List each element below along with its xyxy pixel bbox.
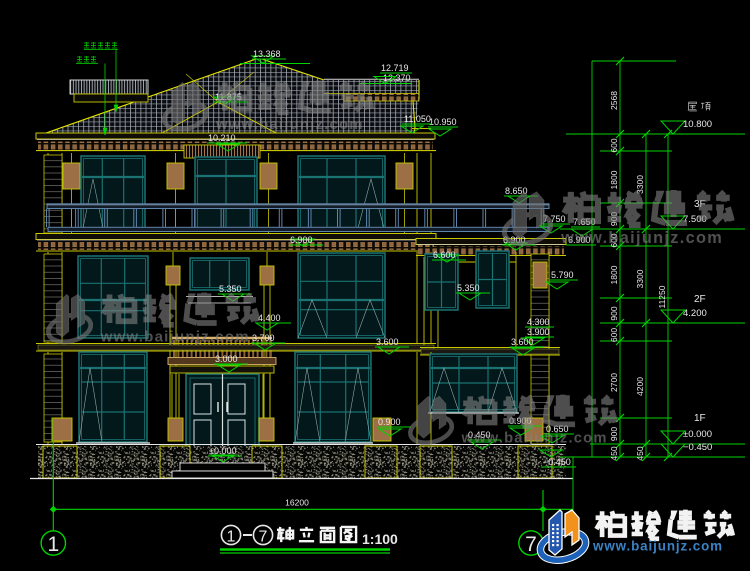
svg-text:450: 450 xyxy=(609,446,619,460)
svg-text:6.900: 6.900 xyxy=(290,235,313,245)
svg-text:±0.000: ±0.000 xyxy=(683,429,712,440)
svg-text:4.400: 4.400 xyxy=(258,313,281,323)
svg-text:450: 450 xyxy=(635,446,645,460)
svg-text:6.600: 6.600 xyxy=(433,250,456,260)
svg-text:16200: 16200 xyxy=(285,498,309,508)
svg-text:12.370: 12.370 xyxy=(383,73,411,83)
svg-text:11.050: 11.050 xyxy=(404,114,431,124)
svg-text:900: 900 xyxy=(609,427,619,441)
svg-text:−0.450: −0.450 xyxy=(543,457,571,467)
svg-text:600: 600 xyxy=(609,328,619,342)
svg-text:4200: 4200 xyxy=(635,377,645,396)
svg-text:1F: 1F xyxy=(694,413,706,424)
svg-text:2568: 2568 xyxy=(609,91,619,110)
svg-text:4.200: 4.200 xyxy=(683,308,707,319)
svg-text:0.900: 0.900 xyxy=(378,417,401,427)
svg-text:3.600: 3.600 xyxy=(376,337,399,347)
svg-text:7: 7 xyxy=(259,529,268,546)
svg-text:5.350: 5.350 xyxy=(457,283,480,293)
svg-text:12.719: 12.719 xyxy=(381,63,409,73)
svg-text:−0.450: −0.450 xyxy=(683,442,712,453)
svg-text:3.900: 3.900 xyxy=(527,327,550,337)
svg-text:3.700: 3.700 xyxy=(252,333,275,343)
svg-text:13.368: 13.368 xyxy=(253,49,281,59)
svg-text:1: 1 xyxy=(47,533,59,556)
svg-text:3.600: 3.600 xyxy=(511,337,534,347)
svg-text:10.950: 10.950 xyxy=(429,117,457,127)
svg-text:5.790: 5.790 xyxy=(551,270,574,280)
svg-text:1800: 1800 xyxy=(609,265,619,284)
svg-text:2700: 2700 xyxy=(609,373,619,392)
svg-text:600: 600 xyxy=(609,138,619,152)
svg-text:1: 1 xyxy=(227,529,236,546)
svg-text:7: 7 xyxy=(525,533,537,556)
svg-text:4.300: 4.300 xyxy=(527,317,550,327)
svg-text:2F: 2F xyxy=(694,294,706,305)
svg-text:±0.000: ±0.000 xyxy=(209,446,236,456)
svg-text:3.000: 3.000 xyxy=(215,354,238,364)
svg-text:10.210: 10.210 xyxy=(208,133,236,143)
svg-text:5.350: 5.350 xyxy=(219,284,242,294)
svg-text:www.baijunjz.com: www.baijunjz.com xyxy=(592,539,723,554)
svg-text:900: 900 xyxy=(609,306,619,320)
svg-text:3300: 3300 xyxy=(635,269,645,288)
svg-text:1:100: 1:100 xyxy=(362,531,398,547)
svg-text:11250: 11250 xyxy=(657,285,667,308)
svg-text:1800: 1800 xyxy=(609,170,619,189)
svg-text:10.800: 10.800 xyxy=(683,119,712,130)
